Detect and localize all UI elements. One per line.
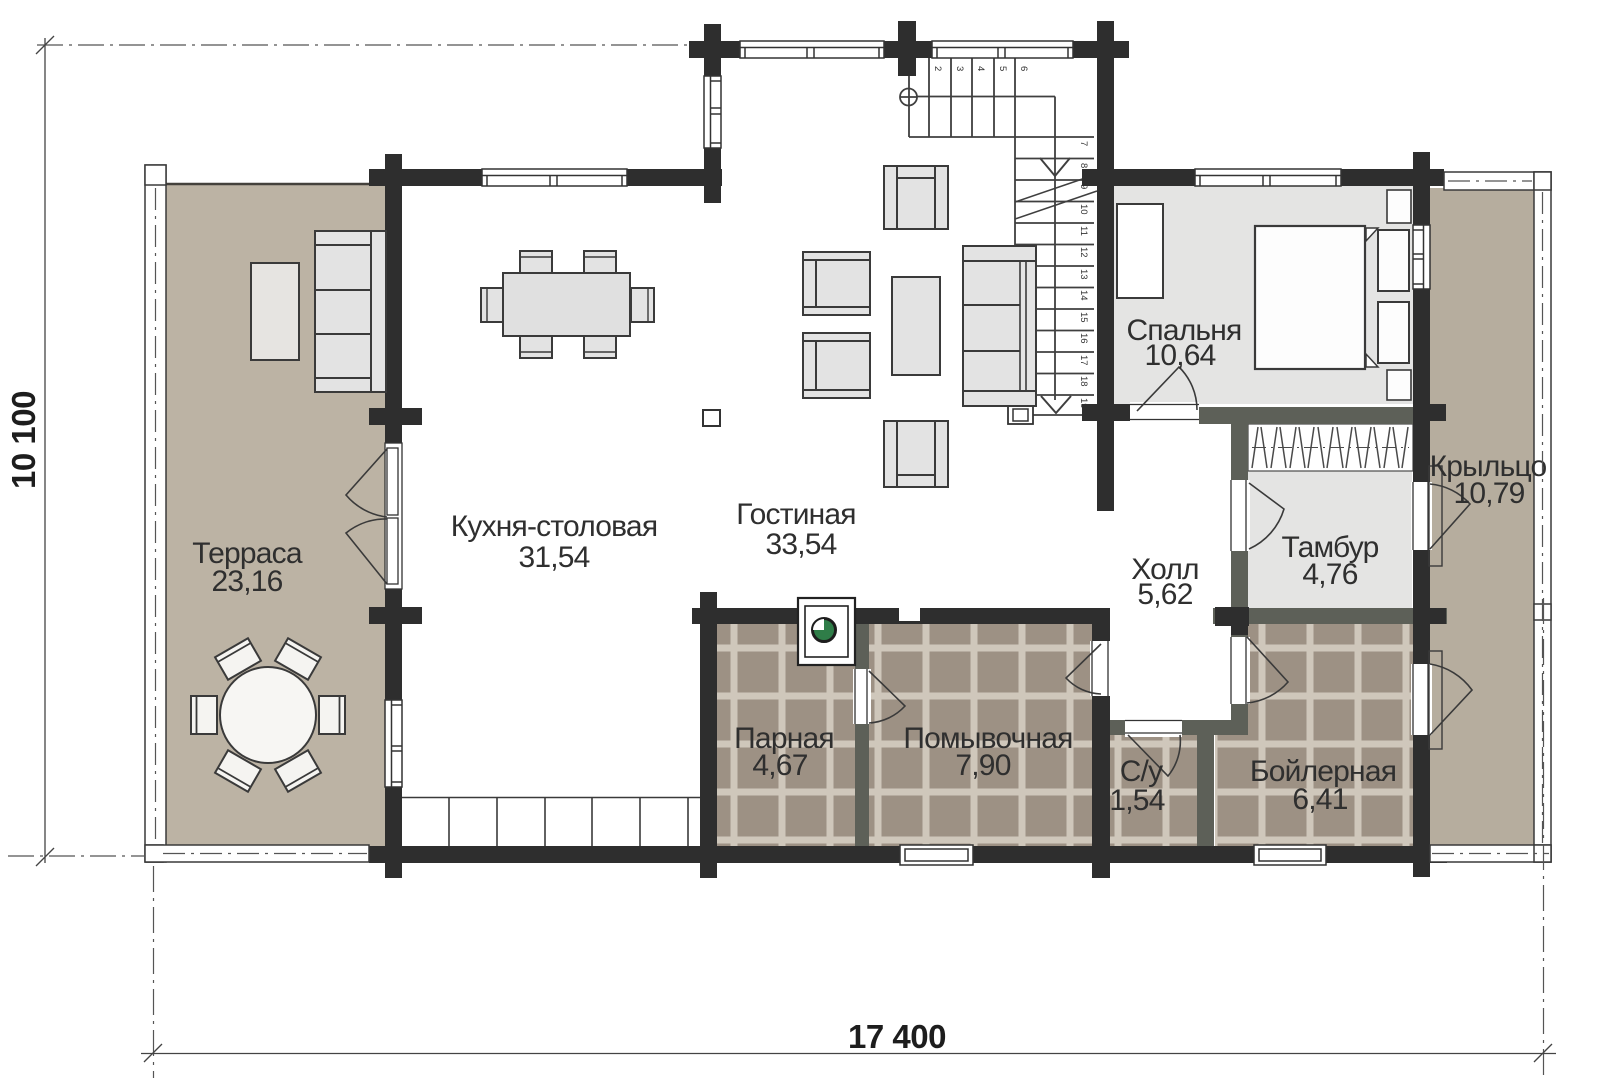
svg-text:Гостиная: Гостиная	[736, 498, 856, 531]
svg-text:4,76: 4,76	[1302, 558, 1357, 591]
svg-text:7: 7	[1078, 141, 1089, 146]
svg-text:31,54: 31,54	[518, 541, 589, 574]
svg-text:14: 14	[1078, 290, 1089, 301]
svg-text:10 100: 10 100	[5, 391, 42, 489]
svg-text:15: 15	[1078, 312, 1089, 323]
svg-text:10,64: 10,64	[1144, 339, 1215, 372]
svg-text:13: 13	[1078, 269, 1089, 280]
svg-text:17: 17	[1078, 355, 1089, 366]
svg-text:17 400: 17 400	[848, 1018, 946, 1055]
svg-text:5,62: 5,62	[1137, 578, 1192, 611]
svg-text:6,41: 6,41	[1292, 783, 1347, 816]
svg-text:18: 18	[1078, 376, 1089, 387]
svg-text:23,16: 23,16	[211, 565, 282, 598]
svg-text:10: 10	[1078, 204, 1089, 215]
svg-text:8: 8	[1078, 163, 1089, 168]
svg-text:12: 12	[1078, 247, 1089, 258]
svg-text:2: 2	[932, 66, 943, 71]
svg-text:16: 16	[1078, 333, 1089, 344]
svg-text:5: 5	[997, 66, 1008, 71]
svg-text:4,67: 4,67	[752, 749, 807, 782]
svg-text:11: 11	[1078, 226, 1089, 236]
svg-text:4: 4	[975, 66, 986, 71]
svg-text:10,79: 10,79	[1453, 477, 1524, 510]
svg-text:Кухня-столовая: Кухня-столовая	[451, 510, 658, 543]
svg-text:33,54: 33,54	[765, 528, 836, 561]
svg-text:6: 6	[1018, 66, 1029, 71]
svg-text:1,54: 1,54	[1109, 784, 1164, 817]
svg-text:3: 3	[954, 66, 965, 71]
svg-text:7,90: 7,90	[955, 749, 1010, 782]
